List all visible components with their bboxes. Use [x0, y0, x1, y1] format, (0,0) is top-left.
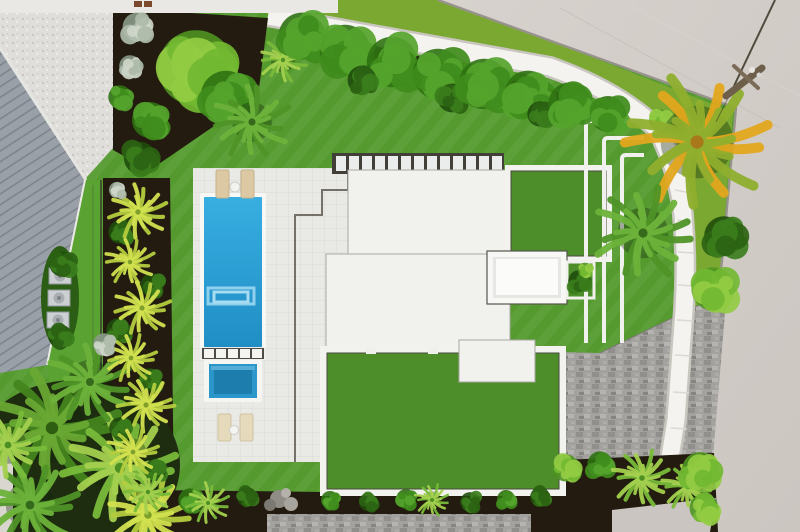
- paver-square: [466, 156, 476, 171]
- spa-bench: [214, 369, 252, 394]
- paver-square: [362, 156, 372, 171]
- paver-square: [479, 156, 489, 171]
- paver-square: [252, 349, 262, 358]
- flat-roof-middle: [326, 254, 510, 352]
- paver-square: [414, 156, 424, 171]
- roof-scupper: [366, 347, 376, 354]
- paver-square: [388, 156, 398, 171]
- courtyard-floor: [496, 259, 558, 295]
- paver-square: [228, 349, 238, 358]
- bush: [548, 81, 595, 129]
- aerial-photo: [0, 0, 800, 532]
- door-mat: [134, 1, 142, 7]
- roof-scupper: [428, 347, 438, 354]
- paver-square: [492, 156, 502, 171]
- turf-roof-ne: [511, 171, 606, 256]
- paver-square: [427, 156, 437, 171]
- pool-water: [204, 197, 262, 347]
- paver-square: [375, 156, 385, 171]
- shrub: [93, 333, 116, 356]
- flat-roof-upper: [348, 170, 510, 257]
- paver-square: [401, 156, 411, 171]
- side-table: [230, 426, 239, 435]
- sidewalk: [0, 0, 338, 13]
- paver-square: [240, 349, 250, 358]
- paver-square: [336, 156, 346, 171]
- flat-roof-notch: [459, 340, 535, 382]
- bridge-pavers: [204, 349, 262, 358]
- spa-step: [211, 366, 255, 370]
- door-mat: [144, 1, 152, 7]
- scene-svg: [0, 0, 800, 532]
- side-table: [230, 182, 240, 192]
- paver-square: [453, 156, 463, 171]
- pool-area: [200, 170, 266, 441]
- paver-square: [440, 156, 450, 171]
- paver-square: [204, 349, 214, 358]
- paver-square: [216, 349, 226, 358]
- insulator: [757, 73, 762, 78]
- insulator: [749, 67, 755, 73]
- paver-strip: [267, 514, 531, 532]
- paver-square: [349, 156, 359, 171]
